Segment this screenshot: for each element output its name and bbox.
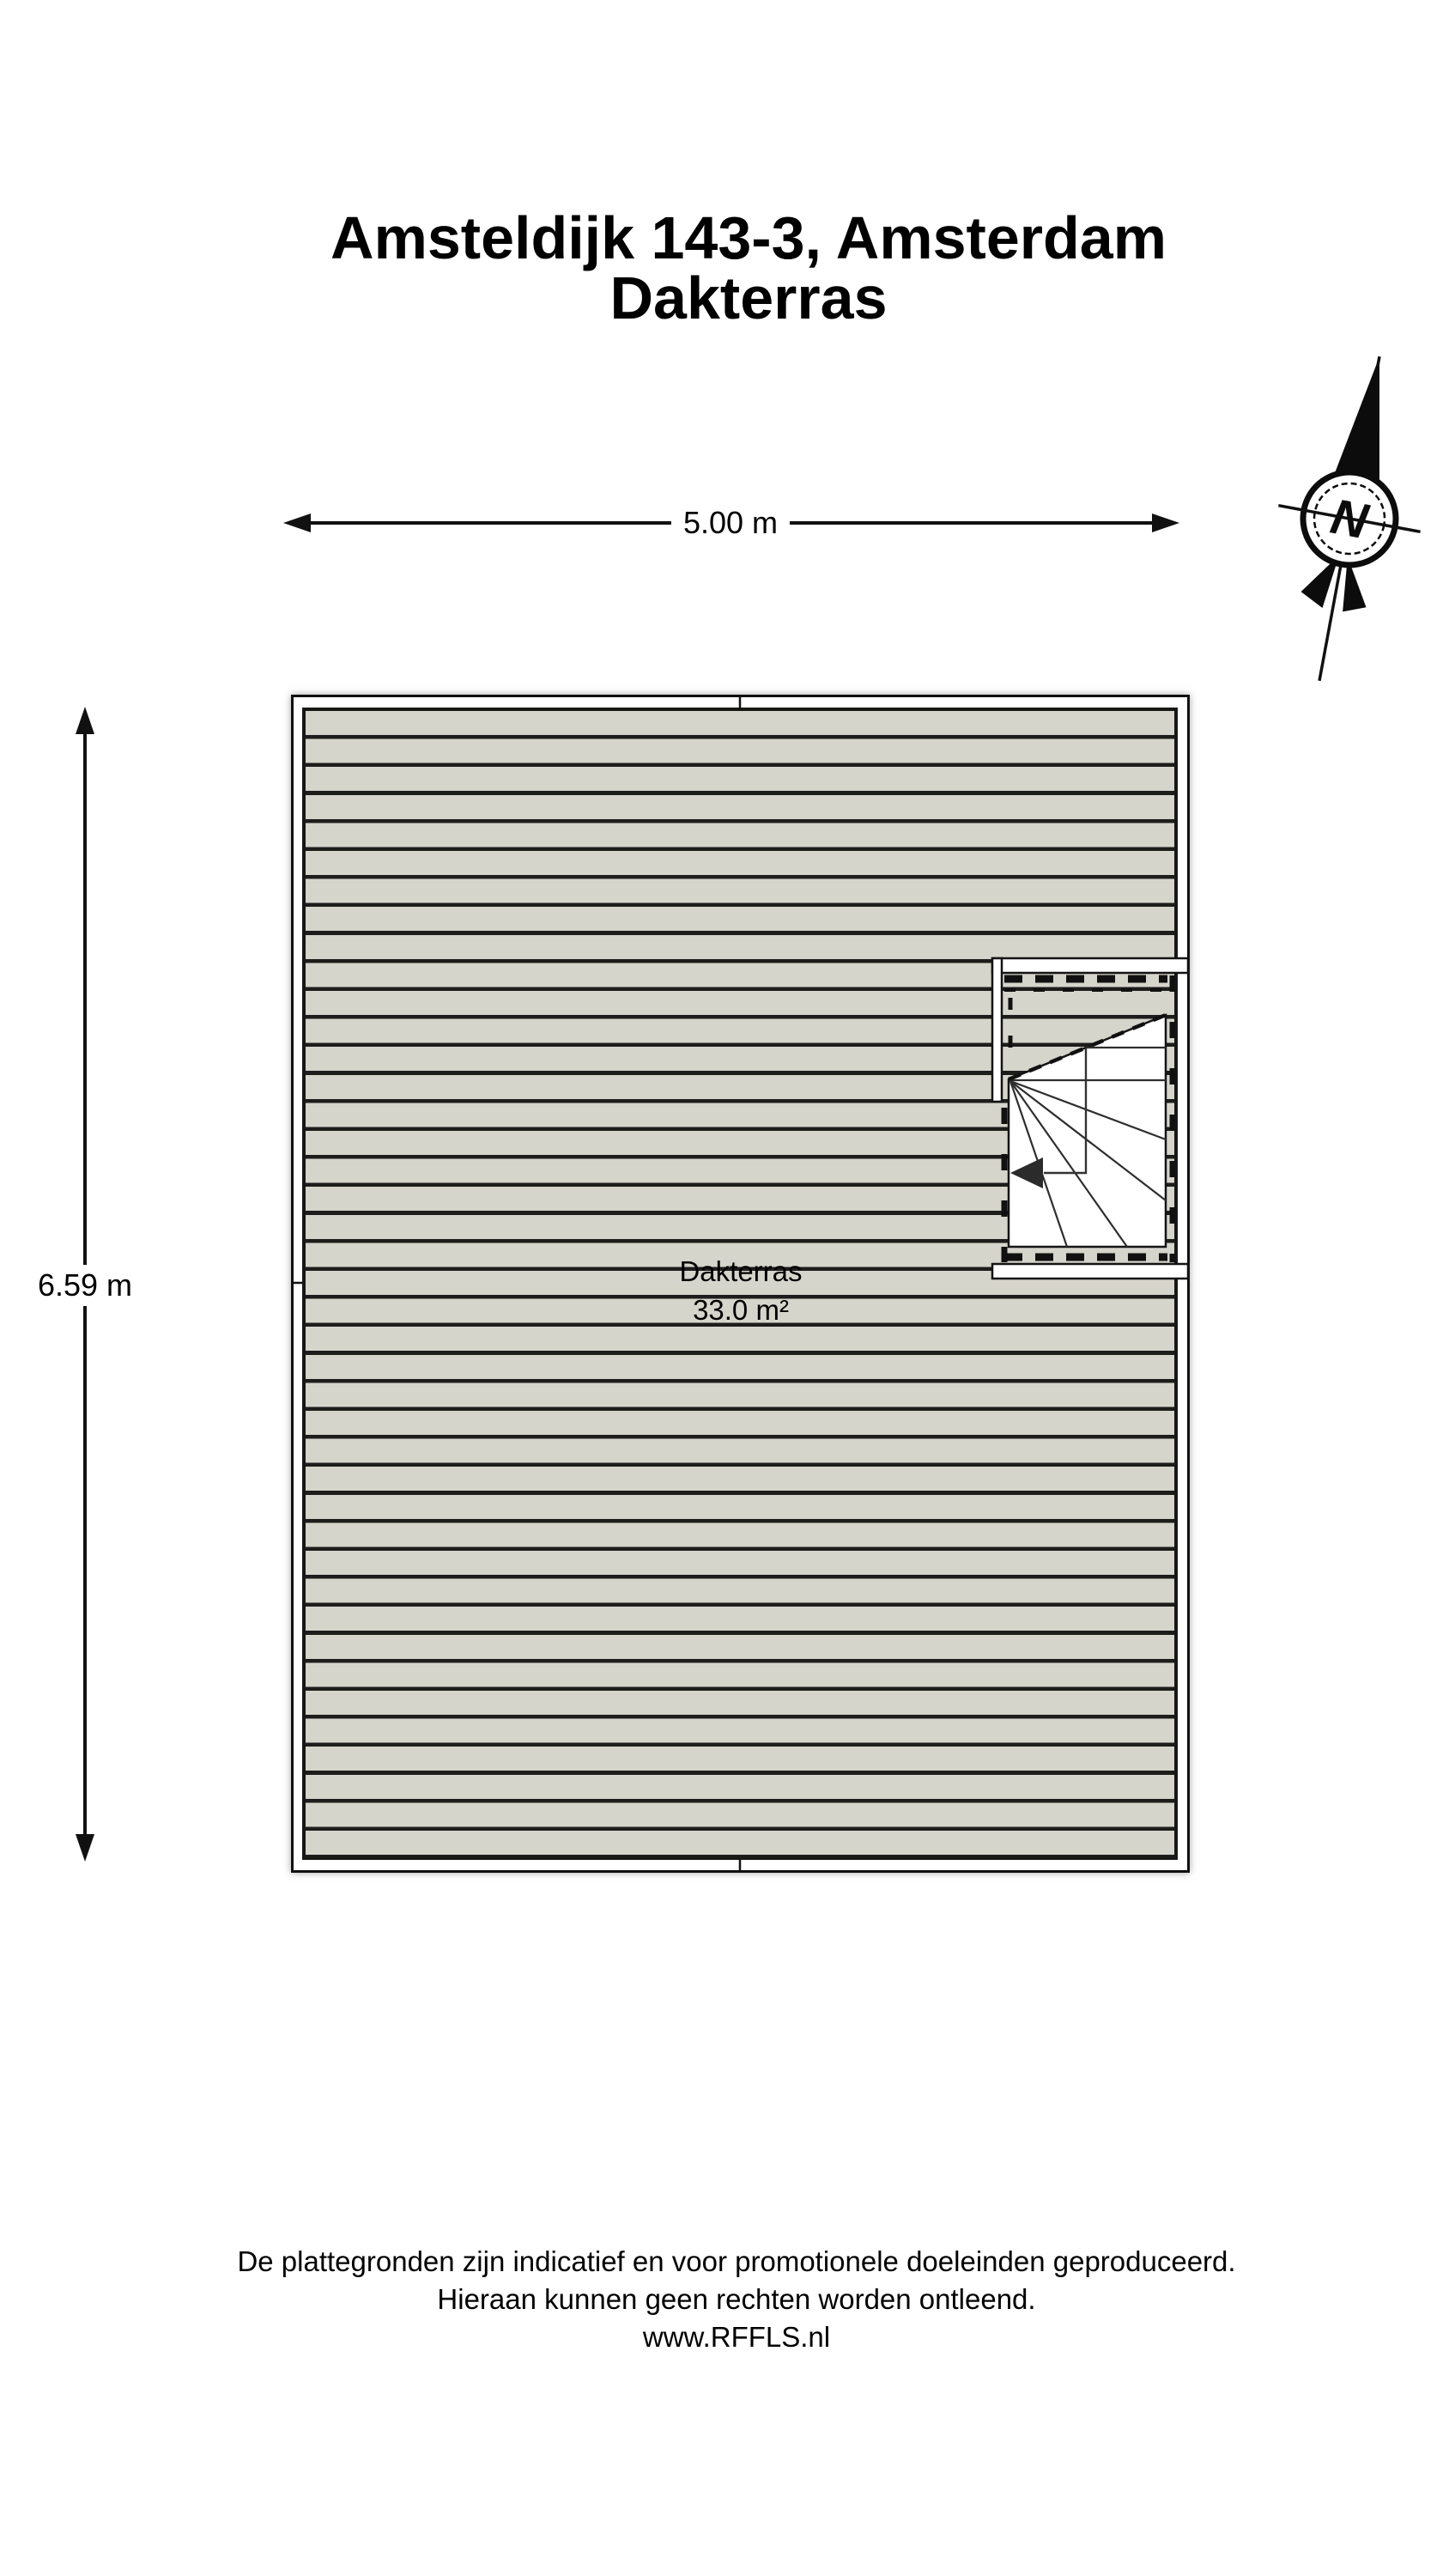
footer-website: www.RFFLS.nl [12,2318,1449,2356]
arrow-down-icon [76,1834,94,1862]
north-arrow-icon: N [1248,343,1449,694]
height-dimension-label: 6.59 m [26,1265,144,1306]
arrow-left-icon [283,513,311,532]
room-label: Dakterras 33.0 m² [397,1252,1084,1329]
disclaimer-line-2: Hieraan kunnen geen rechten worden ontle… [12,2281,1449,2318]
room-area: 33.0 m² [397,1291,1084,1329]
title-floor: Dakterras [24,268,1449,328]
disclaimer-line-1: De plattegronden zijn indicatief en voor… [12,2243,1449,2281]
room-name: Dakterras [397,1252,1084,1291]
compass-north-letter: N [1326,489,1373,550]
width-dimension-label: 5.00 m [671,502,790,544]
page-title: Amsteldijk 143-3, Amsterdam Dakterras [24,208,1449,328]
floorplan-page: { "title": { "line1": "Amsteldijk 143-3,… [0,0,1449,2576]
arrow-up-icon [76,707,94,734]
title-address: Amsteldijk 143-3, Amsterdam [24,208,1449,268]
footer-disclaimer: De plattegronden zijn indicatief en voor… [12,2243,1449,2356]
arrow-right-icon [1152,513,1179,532]
